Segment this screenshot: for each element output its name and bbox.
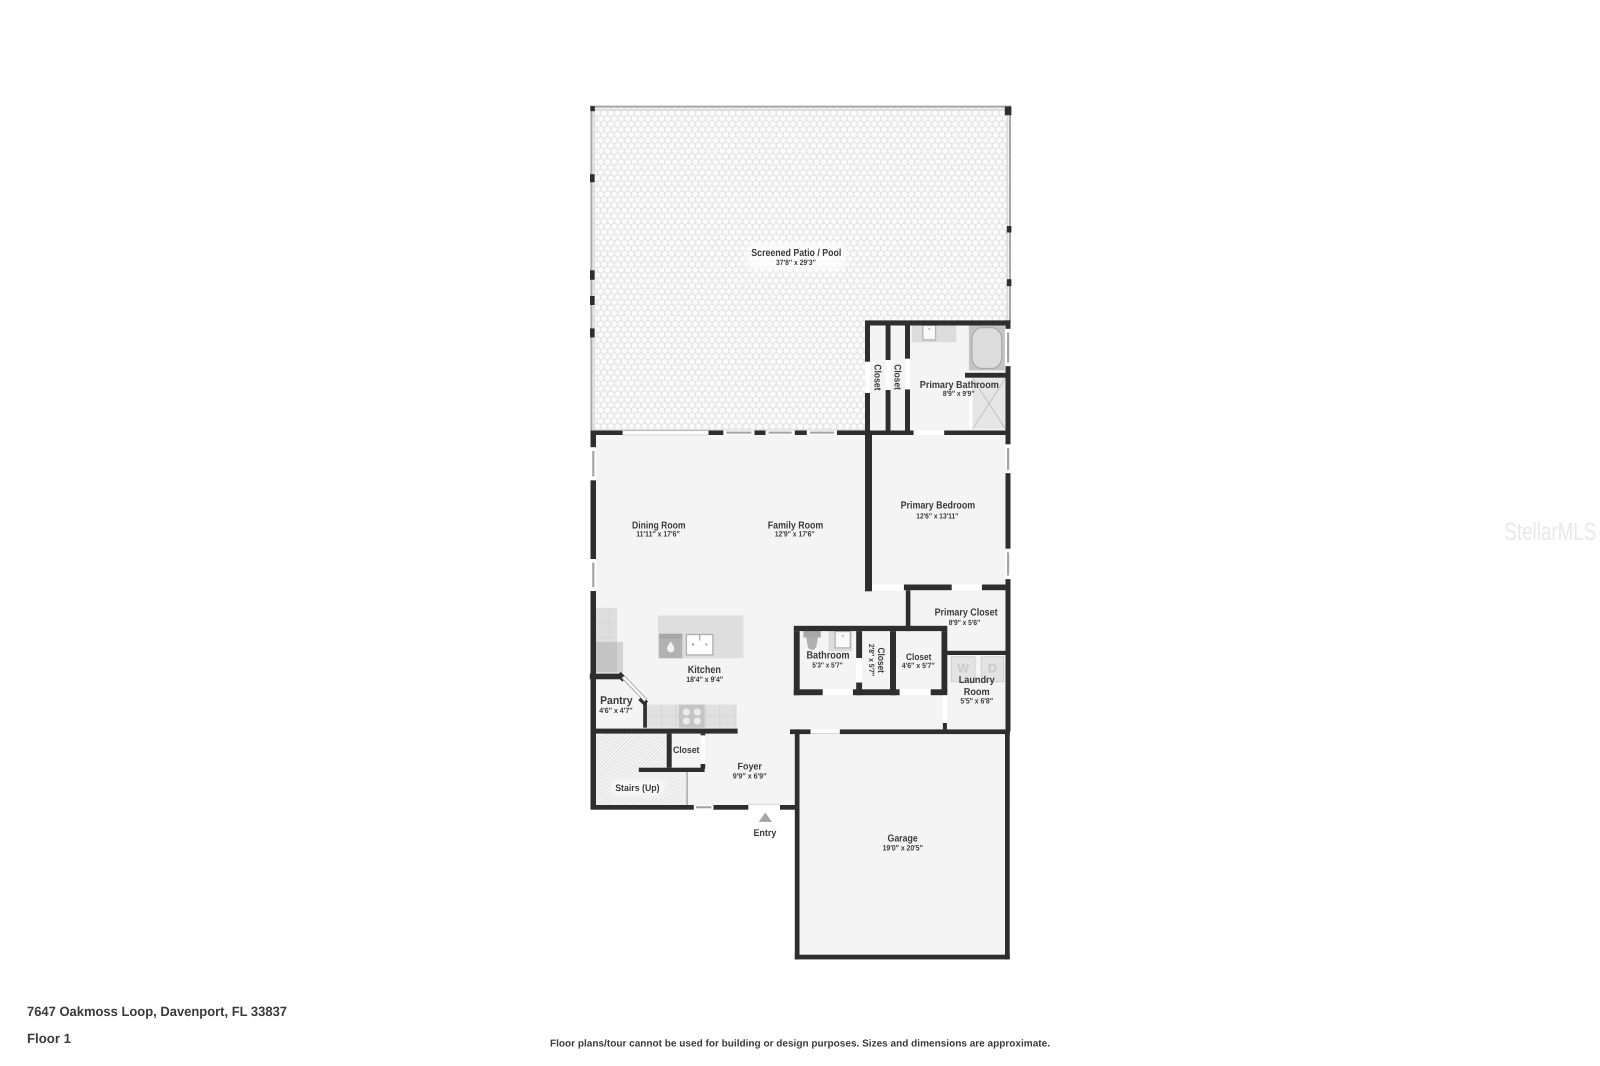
svg-text:W: W: [957, 662, 969, 676]
svg-text:Closet: Closet: [872, 364, 883, 391]
svg-text:Floor 1: Floor 1: [27, 1031, 71, 1046]
svg-text:37′8″ x 29′3″: 37′8″ x 29′3″: [776, 258, 816, 267]
svg-text:5′5″ x 6′8″: 5′5″ x 6′8″: [960, 697, 993, 706]
svg-text:12′6″ x 13′11″: 12′6″ x 13′11″: [916, 512, 958, 521]
svg-text:Closet: Closet: [892, 364, 903, 390]
svg-text:Closet: Closet: [673, 744, 700, 755]
svg-text:12′9″ x 17′6″: 12′9″ x 17′6″: [775, 530, 815, 539]
svg-text:4′6″ x 4′7″: 4′6″ x 4′7″: [599, 706, 633, 715]
svg-text:D: D: [988, 662, 997, 676]
svg-text:Primary Bedroom: Primary Bedroom: [901, 501, 976, 512]
svg-text:4′6″ x 5′7″: 4′6″ x 5′7″: [902, 661, 935, 670]
svg-text:Laundry: Laundry: [959, 675, 995, 686]
svg-text:11′11″ x 17′6″: 11′11″ x 17′6″: [636, 530, 680, 539]
svg-text:StellarMLS: StellarMLS: [1504, 518, 1596, 546]
svg-text:8′9″ x 5′6″: 8′9″ x 5′6″: [949, 618, 981, 627]
svg-text:19′0″ x 20′5″: 19′0″ x 20′5″: [883, 843, 924, 852]
svg-text:Entry: Entry: [753, 828, 776, 839]
svg-text:2′8″ x 5′7″: 2′8″ x 5′7″: [867, 644, 876, 677]
svg-text:7647 Oakmoss Loop, Davenport,: 7647 Oakmoss Loop, Davenport, FL 33837: [27, 1004, 287, 1019]
svg-text:Stairs (Up): Stairs (Up): [615, 783, 659, 794]
svg-text:8′9″ x 9′9″: 8′9″ x 9′9″: [943, 389, 975, 398]
svg-text:18′4″ x 9′4″: 18′4″ x 9′4″: [686, 675, 723, 684]
svg-text:5′3″ x 5′7″: 5′3″ x 5′7″: [812, 660, 843, 669]
svg-text:Floor plans/tour cannot be use: Floor plans/tour cannot be used for buil…: [550, 1039, 1050, 1050]
svg-text:9′9″ x 6′9″: 9′9″ x 6′9″: [733, 772, 767, 781]
